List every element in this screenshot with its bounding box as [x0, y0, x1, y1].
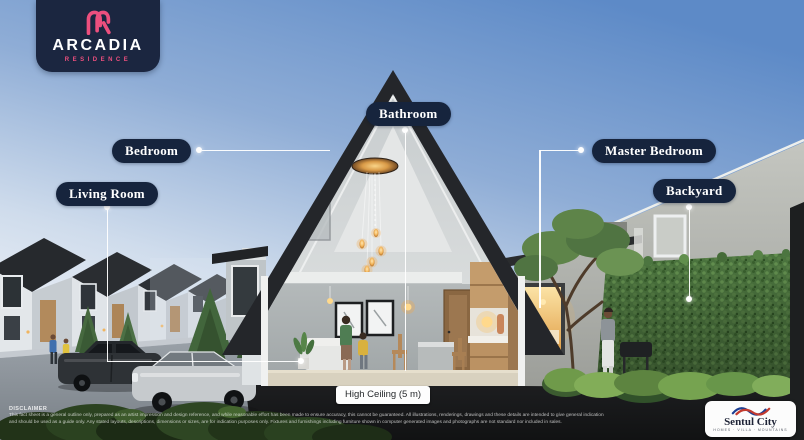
- backyard-connector-line: [689, 210, 691, 298]
- backyard-connector-end-dot: [686, 296, 692, 302]
- developer-tagline: HOMES · VILLA · MOUNTAINS: [713, 429, 787, 433]
- arcadia-monogram-icon: [82, 9, 114, 35]
- developer-name: Sentul City: [724, 417, 777, 428]
- label-living-room: Living Room: [56, 182, 158, 206]
- disclaimer-text: This fact sheet is a general outline onl…: [9, 413, 609, 426]
- arcadia-logo-badge: ARCADIA RESIDENCE: [36, 0, 160, 72]
- label-bathroom: Bathroom: [366, 102, 451, 126]
- arcadia-residence-poster: Living Room Bedroom Bathroom Master Bedr…: [0, 0, 804, 440]
- master-bedroom-connector-line-v: [539, 150, 541, 308]
- living-room-connector-line-h: [107, 361, 303, 363]
- sentul-city-wave-icon: [729, 406, 773, 416]
- living-room-connector-line-v: [107, 210, 109, 362]
- small-window: [655, 216, 685, 256]
- master-bedroom-connector-line-h: [540, 150, 580, 152]
- sentul-city-logo-badge: Sentul City HOMES · VILLA · MOUNTAINS: [705, 401, 796, 437]
- high-ceiling-badge: High Ceiling (5 m): [336, 386, 430, 404]
- living-room-connector-end-dot: [298, 358, 304, 364]
- disclaimer: DISCLAIMER This fact sheet is a general …: [9, 406, 609, 426]
- brand-subtitle: RESIDENCE: [65, 57, 132, 63]
- bedroom-connector-line: [202, 150, 330, 152]
- brand-name: ARCADIA: [52, 38, 143, 54]
- label-bedroom: Bedroom: [112, 139, 191, 163]
- bathroom-connector-line: [405, 133, 407, 371]
- label-backyard: Backyard: [653, 179, 736, 203]
- label-master-bedroom: Master Bedroom: [592, 139, 716, 163]
